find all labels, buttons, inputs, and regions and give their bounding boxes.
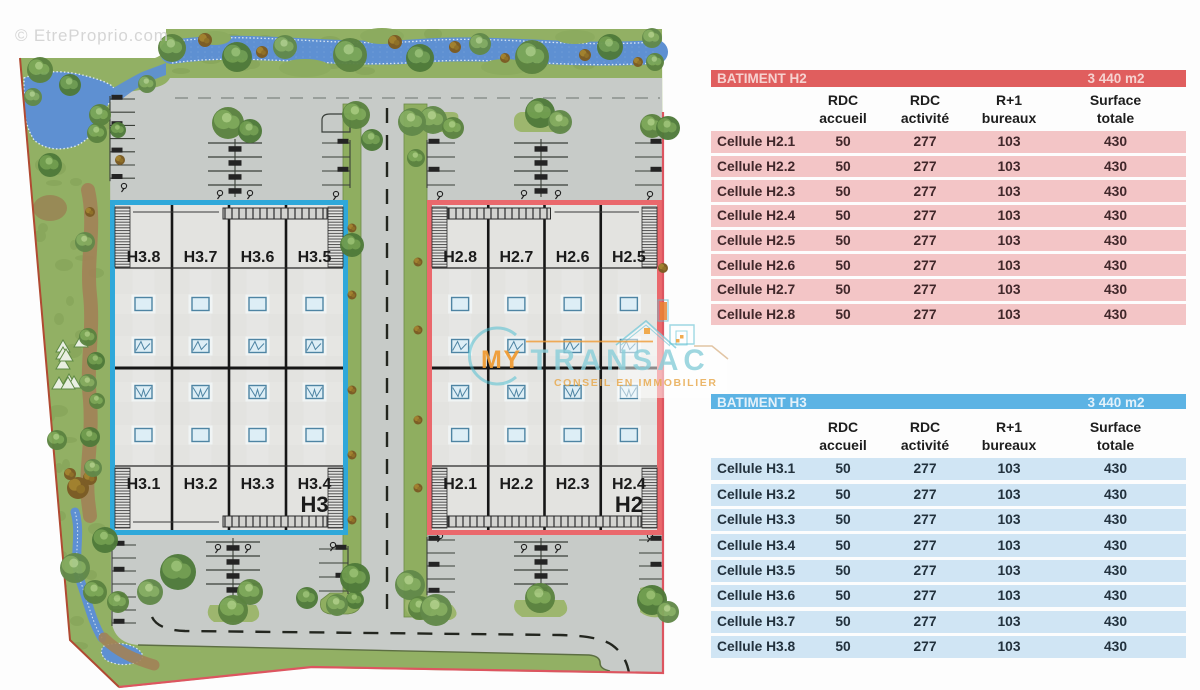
svg-text:H3.1: H3.1 — [127, 476, 161, 493]
svg-text:H3.5: H3.5 — [298, 249, 332, 266]
svg-text:CONSEIL EN IMMOBILIER: CONSEIL EN IMMOBILIER — [554, 377, 718, 389]
svg-text:H2.2: H2.2 — [499, 476, 533, 493]
svg-text:H2.7: H2.7 — [499, 249, 533, 266]
svg-text:H2.3: H2.3 — [556, 476, 590, 493]
svg-text:H3.6: H3.6 — [241, 249, 275, 266]
svg-text:H2: H2 — [615, 492, 643, 517]
svg-text:H2.4: H2.4 — [612, 476, 646, 493]
svg-text:H3.2: H3.2 — [184, 476, 218, 493]
svg-text:H3.4: H3.4 — [298, 476, 332, 493]
svg-text:H3.7: H3.7 — [184, 249, 218, 266]
svg-text:H2.1: H2.1 — [443, 476, 477, 493]
svg-text:H2.8: H2.8 — [443, 249, 477, 266]
svg-text:H3.8: H3.8 — [127, 249, 161, 266]
svg-text:H3: H3 — [300, 492, 328, 517]
svg-text:H2.6: H2.6 — [556, 249, 590, 266]
svg-text:H3.3: H3.3 — [241, 476, 275, 493]
svg-text:H2.5: H2.5 — [612, 249, 646, 266]
svg-text:MY: MY — [481, 346, 522, 374]
svg-text:TRANSAC: TRANSAC — [531, 344, 710, 377]
